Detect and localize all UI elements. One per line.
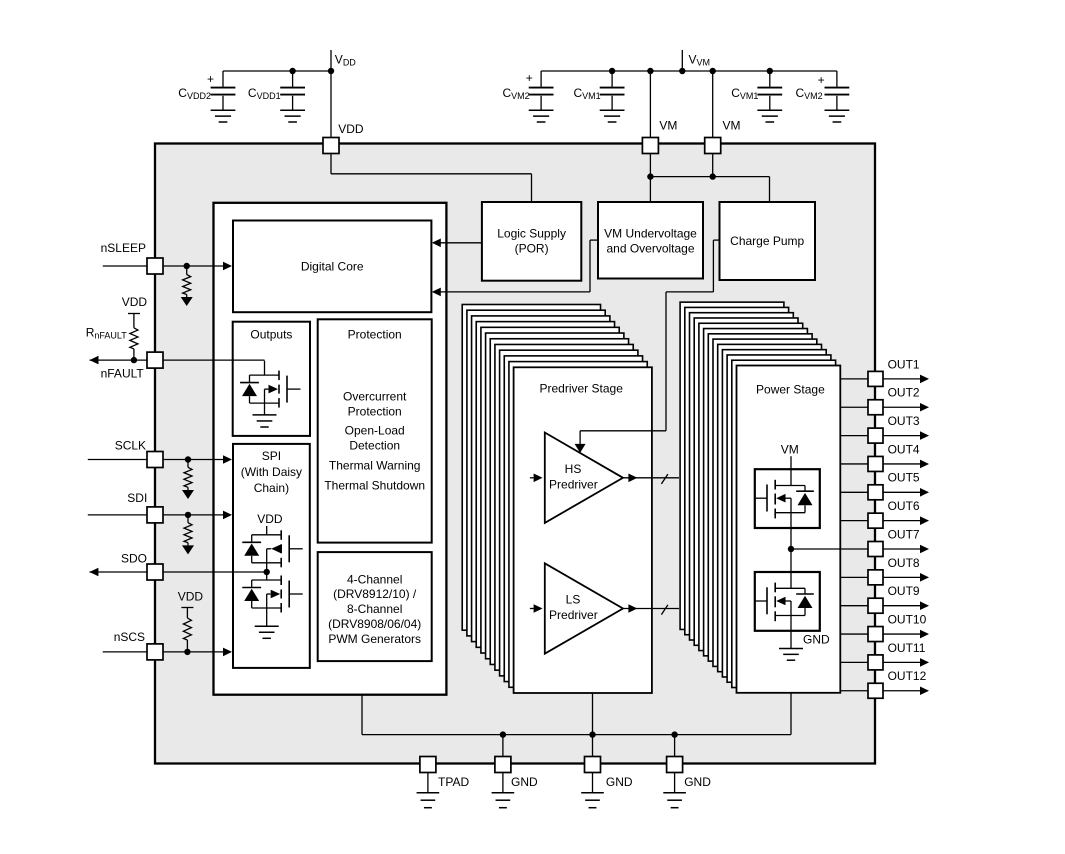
svg-text:VM Undervoltage: VM Undervoltage xyxy=(604,226,697,240)
svg-text:VM: VM xyxy=(723,119,741,133)
svg-text:VDD: VDD xyxy=(338,122,364,136)
svg-text:Charge Pump: Charge Pump xyxy=(730,234,804,248)
svg-text:OUT10: OUT10 xyxy=(888,612,927,626)
svg-text:(With Daisy: (With Daisy xyxy=(241,465,302,479)
svg-text:OUT3: OUT3 xyxy=(888,414,920,428)
svg-text:OUT7: OUT7 xyxy=(888,527,920,541)
svg-text:Logic Supply: Logic Supply xyxy=(497,226,566,240)
svg-text:Predriver: Predriver xyxy=(549,608,598,622)
svg-text:VM: VM xyxy=(781,443,799,457)
svg-text:HS: HS xyxy=(565,462,582,476)
svg-text:OUT4: OUT4 xyxy=(888,442,920,456)
svg-text:Thermal Warning: Thermal Warning xyxy=(329,459,421,473)
svg-text:SCLK: SCLK xyxy=(115,439,146,453)
svg-text:OUT2: OUT2 xyxy=(888,386,920,400)
svg-text:GND: GND xyxy=(803,633,830,647)
svg-text:GND: GND xyxy=(684,775,711,789)
svg-text:OUT5: OUT5 xyxy=(888,471,920,485)
svg-text:Outputs: Outputs xyxy=(250,327,292,341)
svg-text:Protection: Protection xyxy=(348,404,402,418)
svg-text:+: + xyxy=(818,73,825,87)
svg-text:TPAD: TPAD xyxy=(438,775,469,789)
svg-text:OUT9: OUT9 xyxy=(888,584,920,598)
svg-text:OUT11: OUT11 xyxy=(888,641,926,655)
svg-text:+: + xyxy=(207,72,214,86)
svg-text:SDI: SDI xyxy=(127,491,147,505)
svg-text:nSLEEP: nSLEEP xyxy=(101,241,146,255)
svg-text:SDO: SDO xyxy=(121,552,147,566)
svg-text:OUT12: OUT12 xyxy=(888,669,927,683)
svg-text:VDD: VDD xyxy=(178,590,204,604)
svg-text:Predriver Stage: Predriver Stage xyxy=(540,382,624,396)
svg-text:Thermal Shutdown: Thermal Shutdown xyxy=(324,478,425,492)
svg-text:OUT8: OUT8 xyxy=(888,556,920,570)
svg-text:+: + xyxy=(526,71,533,85)
svg-text:(DRV8908/06/04): (DRV8908/06/04) xyxy=(328,617,421,631)
svg-text:Digital Core: Digital Core xyxy=(301,259,364,273)
svg-text:PWM Generators: PWM Generators xyxy=(328,632,421,646)
svg-text:Open-Load: Open-Load xyxy=(345,424,405,438)
svg-text:OUT6: OUT6 xyxy=(888,499,920,513)
svg-text:8-Channel: 8-Channel xyxy=(347,602,402,616)
svg-text:LS: LS xyxy=(566,593,581,607)
svg-text:GND: GND xyxy=(606,775,633,789)
svg-text:VM: VM xyxy=(659,119,677,133)
svg-text:VDD: VDD xyxy=(122,295,148,309)
svg-text:(POR): (POR) xyxy=(515,242,549,256)
svg-text:GND: GND xyxy=(511,775,538,789)
svg-text:Power Stage: Power Stage xyxy=(756,383,825,397)
svg-text:Overcurrent: Overcurrent xyxy=(343,390,407,404)
svg-text:Protection: Protection xyxy=(348,327,402,341)
svg-text:Predriver: Predriver xyxy=(549,478,598,492)
svg-text:OUT1: OUT1 xyxy=(888,357,920,371)
svg-text:and Overvoltage: and Overvoltage xyxy=(606,242,694,256)
svg-text:Chain): Chain) xyxy=(254,481,289,495)
svg-text:4-Channel: 4-Channel xyxy=(347,572,402,586)
svg-text:SPI: SPI xyxy=(262,449,281,463)
svg-text:VDD: VDD xyxy=(257,512,283,526)
svg-text:nSCS: nSCS xyxy=(114,630,145,644)
svg-text:Detection: Detection xyxy=(349,439,400,453)
svg-text:(DRV8912/10) /: (DRV8912/10) / xyxy=(333,587,417,601)
svg-text:nFAULT: nFAULT xyxy=(101,367,145,381)
